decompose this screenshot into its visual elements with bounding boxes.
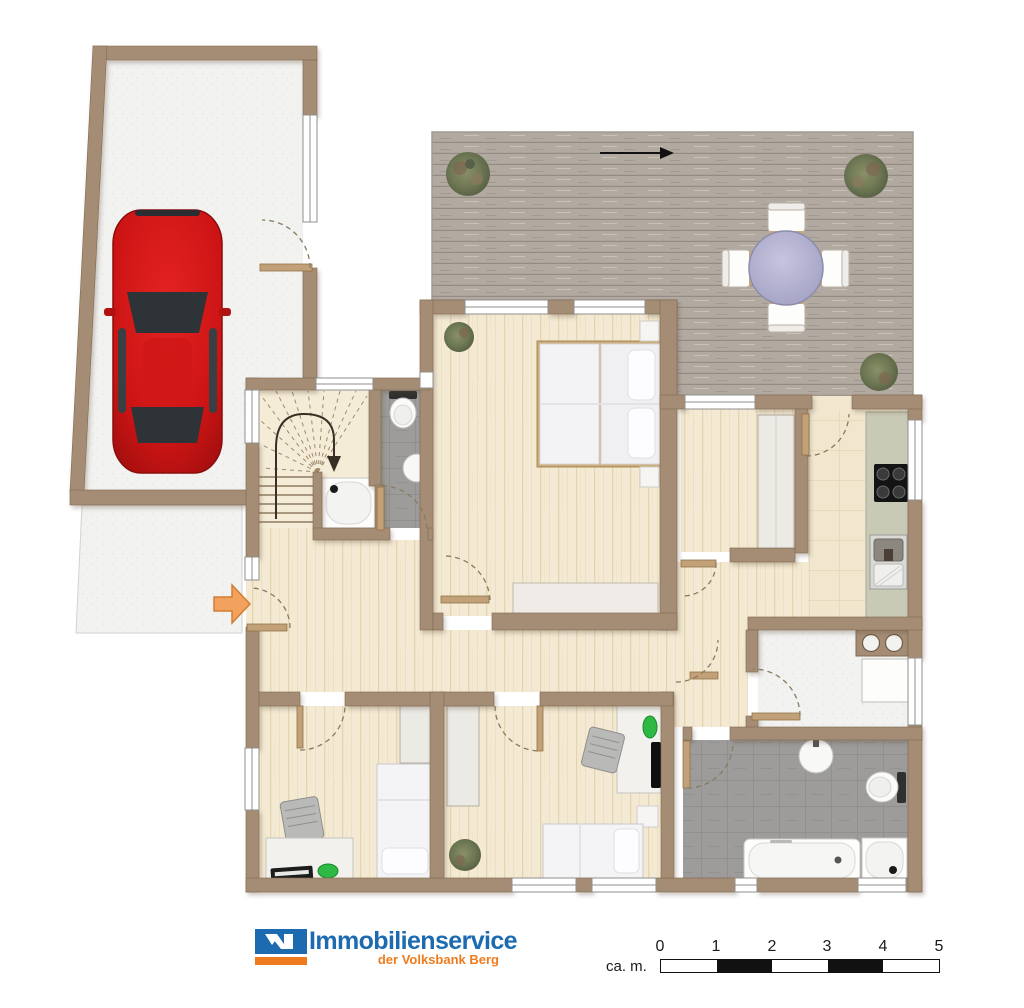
window: [735, 878, 757, 892]
kitchen-fixtures: [866, 412, 908, 618]
scale-segment: [828, 960, 884, 972]
scale-indicator: ca. m. 0 1 2 3 4 5: [600, 930, 960, 980]
window: [303, 115, 317, 222]
door-leaf: [683, 741, 690, 788]
window: [685, 395, 755, 409]
wardrobe: [447, 706, 479, 806]
window: [245, 748, 259, 810]
cooktop: [874, 464, 908, 502]
window: [908, 658, 922, 725]
door-leaf: [681, 560, 716, 567]
wardrobe: [400, 706, 431, 763]
monitor: [651, 742, 661, 788]
volksbank-logo-icon: [255, 929, 307, 966]
car-rear-window: [131, 407, 204, 443]
scale-segment: [772, 960, 828, 972]
scale-unit-label: ca. m.: [606, 958, 647, 975]
pillow: [628, 350, 655, 400]
window: [858, 878, 906, 892]
window: [420, 372, 433, 388]
floor-plan-drawing: [0, 0, 1024, 920]
volksbank-v-icon: [255, 929, 307, 954]
appliance: [862, 659, 908, 702]
brand-subtitle: der Volksbank Berg: [309, 952, 499, 967]
bathtub: [744, 839, 860, 882]
door-leaf: [537, 706, 543, 751]
scale-bar: [660, 959, 940, 973]
window: [908, 420, 922, 500]
nightstand: [640, 467, 659, 487]
pillow: [614, 829, 639, 873]
window: [245, 557, 259, 580]
brand-logo: Immobilienservice der Volksbank Berg: [255, 929, 515, 975]
door-leaf: [802, 414, 809, 455]
window: [316, 378, 373, 390]
door-leaf: [297, 706, 303, 748]
door-leaf: [752, 713, 800, 720]
car: [104, 210, 231, 473]
plant-icon: [444, 322, 474, 352]
scale-tick: 3: [823, 938, 832, 956]
scale-tick: 5: [935, 938, 944, 956]
desk-chair: [280, 796, 325, 844]
kitchen-sink: [870, 535, 907, 589]
plant-icon: [844, 154, 888, 198]
nightstand: [640, 321, 659, 341]
plant-icon: [446, 152, 490, 196]
door-leaf: [441, 596, 489, 603]
plant-icon: [860, 353, 898, 391]
window: [512, 878, 576, 892]
scale-tick: 4: [879, 938, 888, 956]
kitchen-door-threshold: [812, 396, 852, 410]
shower: [322, 478, 375, 528]
door-leaf: [247, 624, 287, 631]
scale-segment: [883, 960, 939, 972]
floor-plan-page: Immobilienservice der Volksbank Berg ca.…: [0, 0, 1024, 1008]
mouse: [643, 716, 657, 738]
scale-segment: [717, 960, 773, 972]
scale-segment: [661, 960, 717, 972]
window: [465, 300, 548, 314]
logo-orange-bar: [255, 957, 307, 965]
window: [592, 878, 656, 892]
shower: [862, 838, 907, 882]
pillow: [628, 408, 655, 458]
footer: Immobilienservice der Volksbank Berg ca.…: [0, 920, 1024, 1000]
scale-tick: 0: [656, 938, 665, 956]
scale-tick: 2: [768, 938, 777, 956]
car-windshield: [127, 292, 208, 333]
door-leaf: [377, 487, 384, 530]
scale-tick: 1: [712, 938, 721, 956]
basin: [863, 635, 880, 652]
dining-table: [749, 231, 823, 305]
window: [245, 390, 259, 443]
pillow: [382, 848, 428, 874]
plant-icon: [449, 839, 481, 871]
mouse: [318, 864, 338, 878]
window: [574, 300, 645, 314]
utility-fixtures: [856, 630, 908, 702]
basin: [886, 635, 903, 652]
driveway: [76, 505, 242, 633]
door-leaf: [260, 264, 312, 271]
sideboard: [513, 583, 658, 614]
